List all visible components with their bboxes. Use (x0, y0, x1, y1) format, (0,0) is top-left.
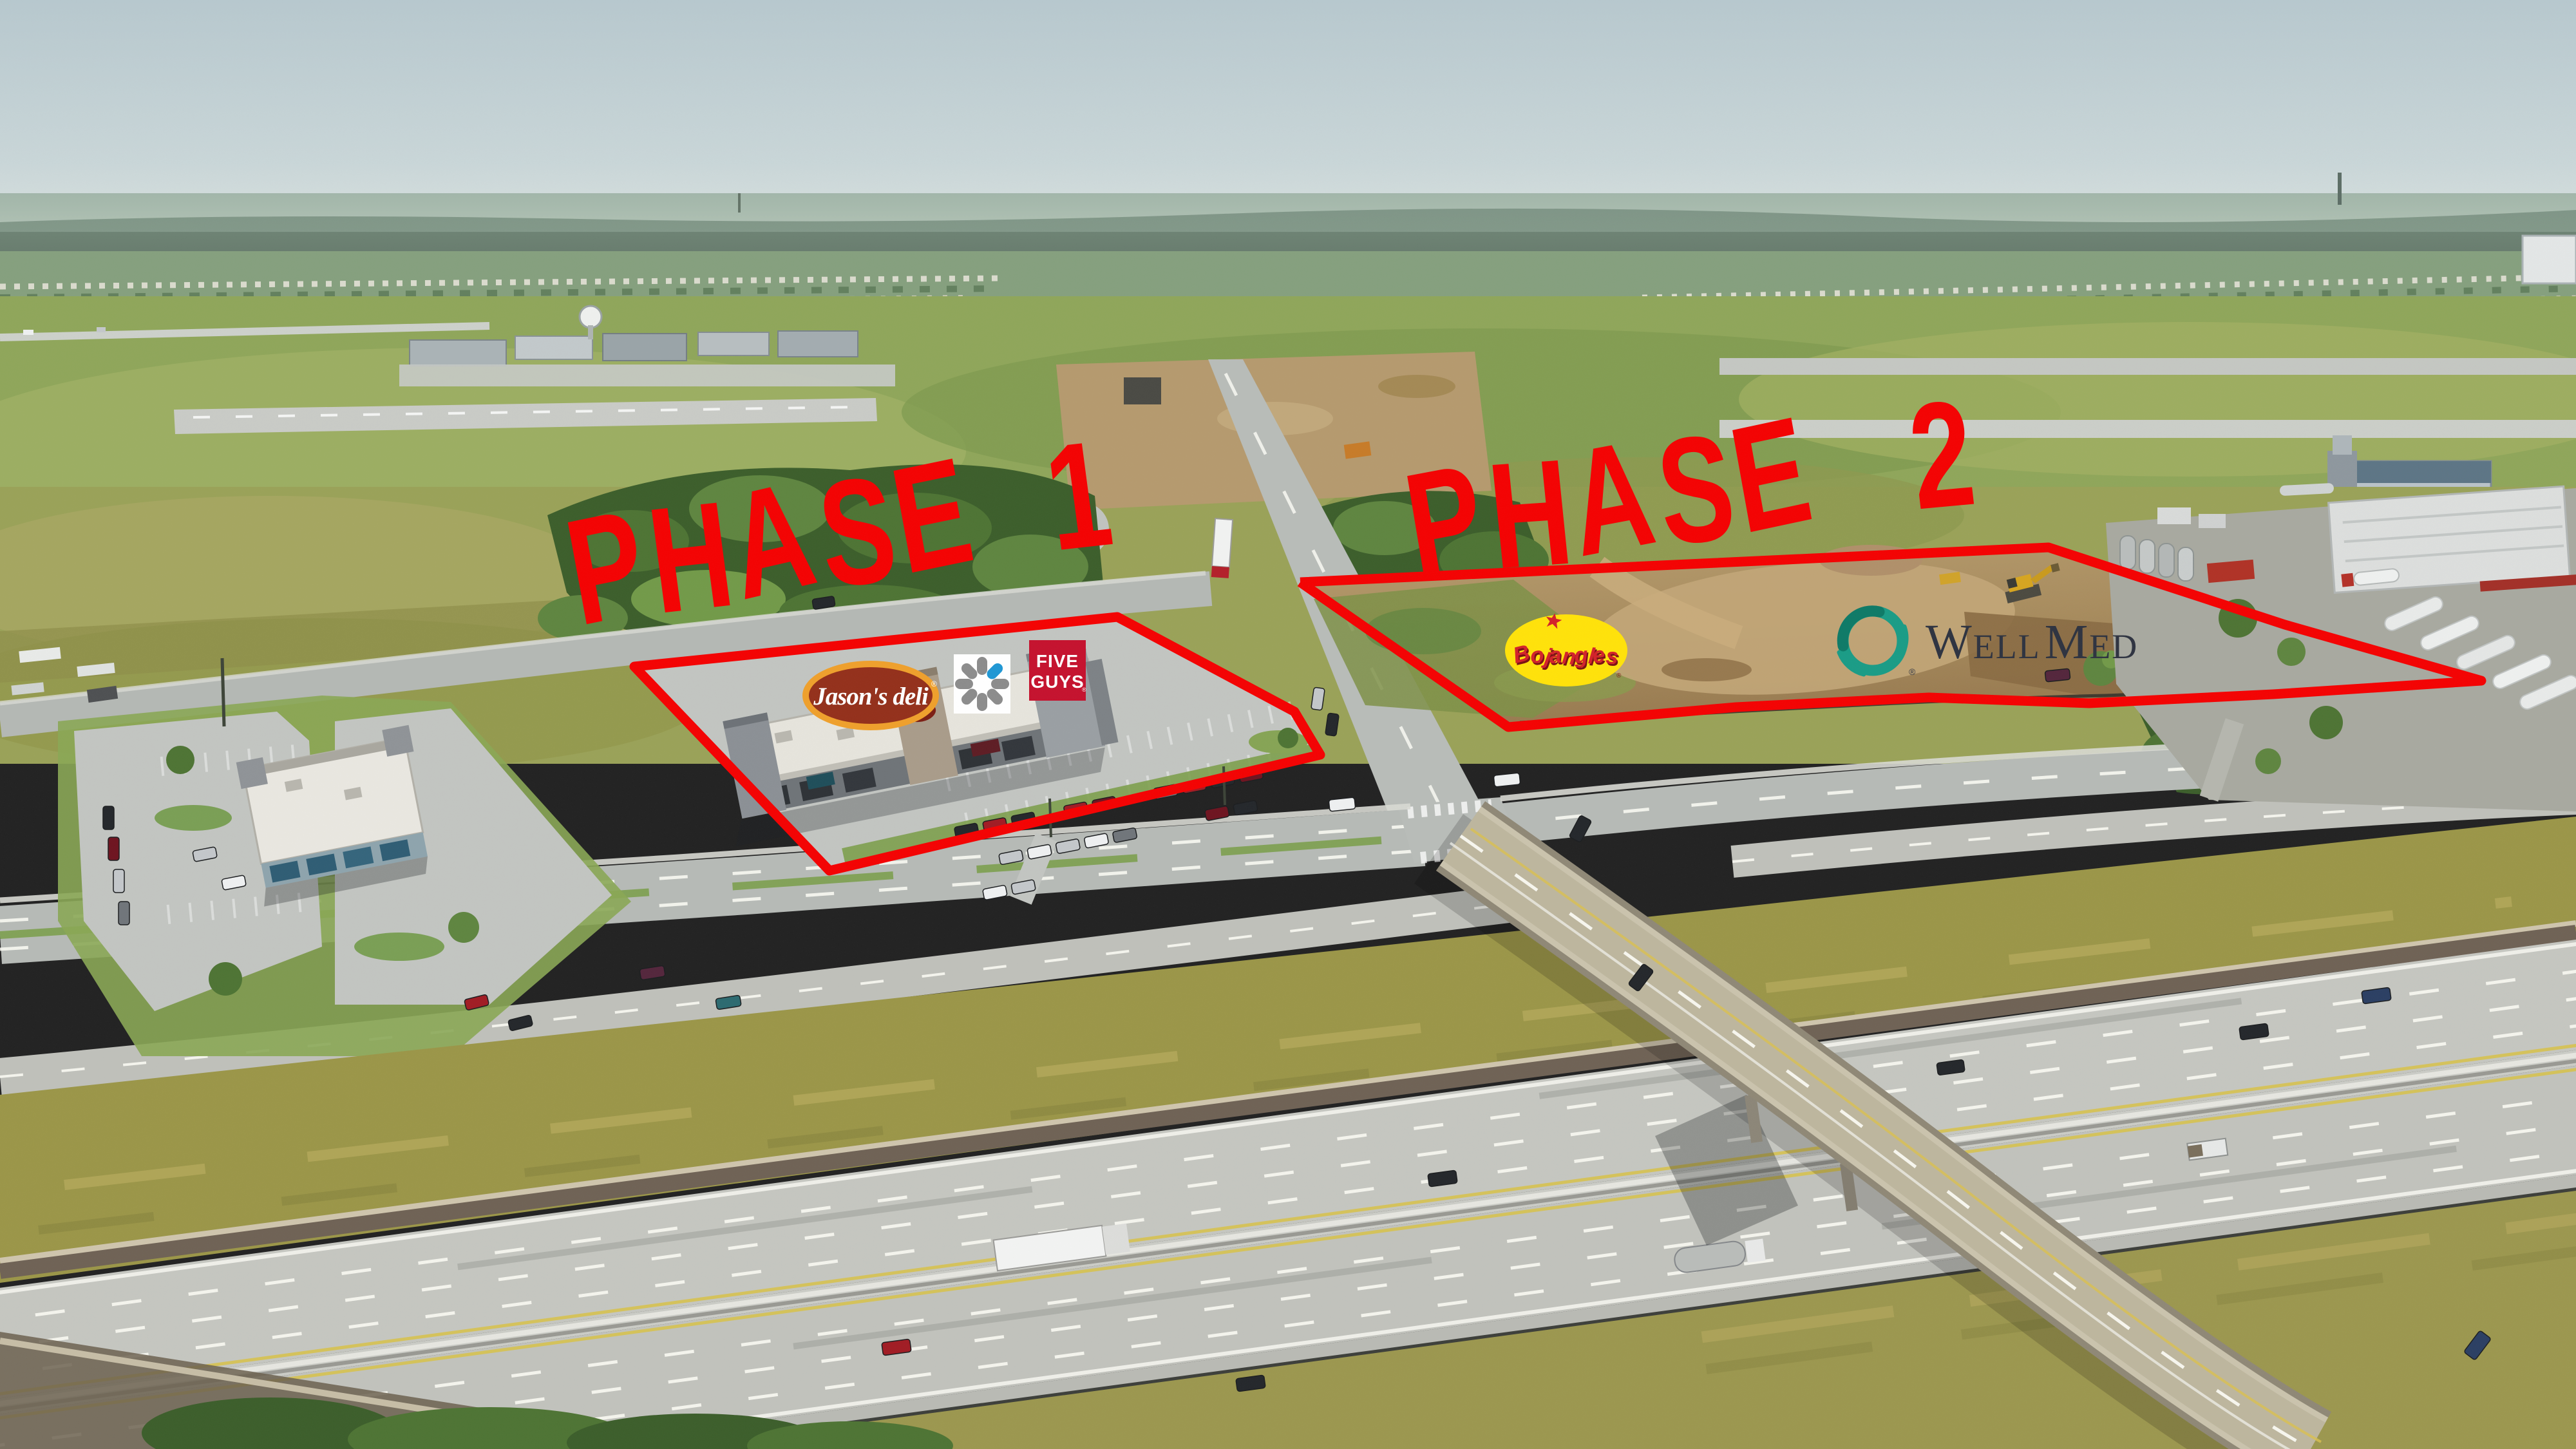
scene-canvas: PHASE 1 PHASE 2 Jason's deli ® (0, 0, 2576, 1449)
grain-overlay (0, 0, 2576, 1449)
aerial-marketing-photo: PHASE 1 PHASE 2 Jason's deli ® (0, 0, 2576, 1449)
